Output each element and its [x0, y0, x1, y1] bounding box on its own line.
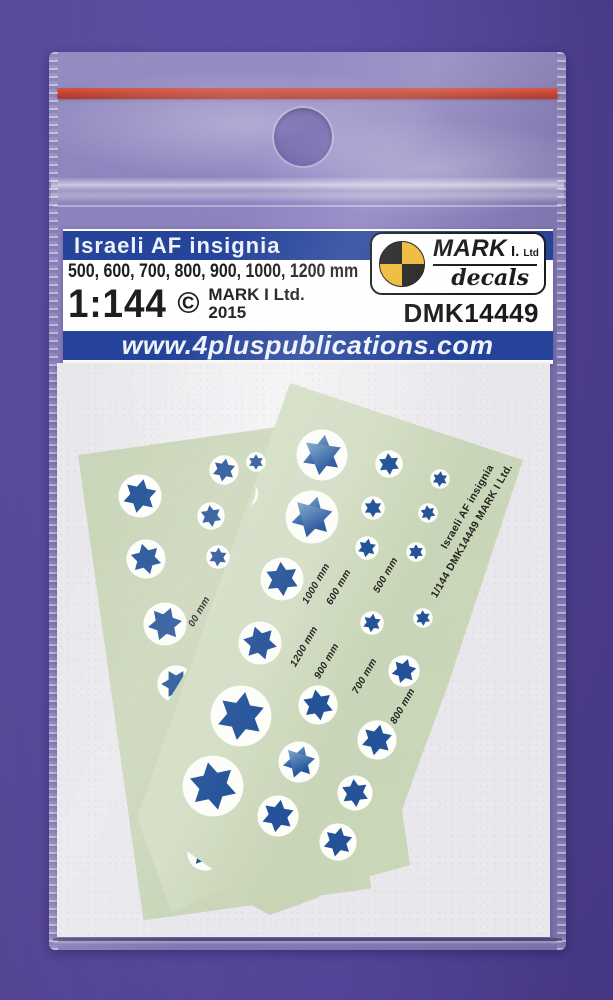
logo-top-line: MARK I. Ltd: [433, 235, 537, 266]
logo-ltd-text: Ltd: [523, 248, 539, 259]
website-url: www.4pluspublications.com: [122, 331, 494, 360]
ziplock-seal: [51, 177, 564, 203]
logo-suffix-text: I.: [511, 243, 519, 260]
marki-decals-logo: MARK I. Ltd decals: [370, 232, 546, 295]
product-photo: Israeli AF insignia 500, 600, 700, 800, …: [0, 0, 613, 1000]
logo-decals-text: decals: [433, 266, 537, 291]
product-title: Israeli AF insignia: [74, 233, 280, 258]
brand-name: MARK I Ltd.: [208, 286, 304, 304]
hang-hole: [274, 108, 332, 166]
paper-insert: [57, 363, 550, 937]
sizes-line: 500, 600, 700, 800, 900, 1000, 1200 mm: [68, 261, 316, 283]
card-middle: 500, 600, 700, 800, 900, 1000, 1200 mm 1…: [68, 260, 363, 324]
brand-stack: MARK I Ltd. 2015: [208, 286, 304, 322]
ziplock-bag: Israeli AF insignia 500, 600, 700, 800, …: [49, 52, 566, 950]
bag-bottom-seam: [53, 938, 562, 941]
brand-year: 2015: [208, 304, 304, 322]
bag-red-seal-stripe: [57, 88, 558, 99]
bag-crease-line: [53, 205, 562, 207]
header-card: Israeli AF insignia 500, 600, 700, 800, …: [63, 229, 553, 364]
logo-brand-text: MARK: [433, 235, 507, 263]
bag-crimped-edge-right: [557, 52, 566, 950]
logo-text-block: MARK I. Ltd decals: [433, 235, 537, 291]
scale-text: 1:144: [68, 284, 167, 324]
scale-row: 1:144 © MARK I Ltd. 2015: [68, 284, 363, 324]
website-banner: www.4pluspublications.com: [63, 331, 553, 360]
copyright-icon: ©: [177, 289, 199, 319]
quartered-roundel-icon: [379, 241, 425, 287]
product-code: DMK14449: [403, 298, 539, 329]
